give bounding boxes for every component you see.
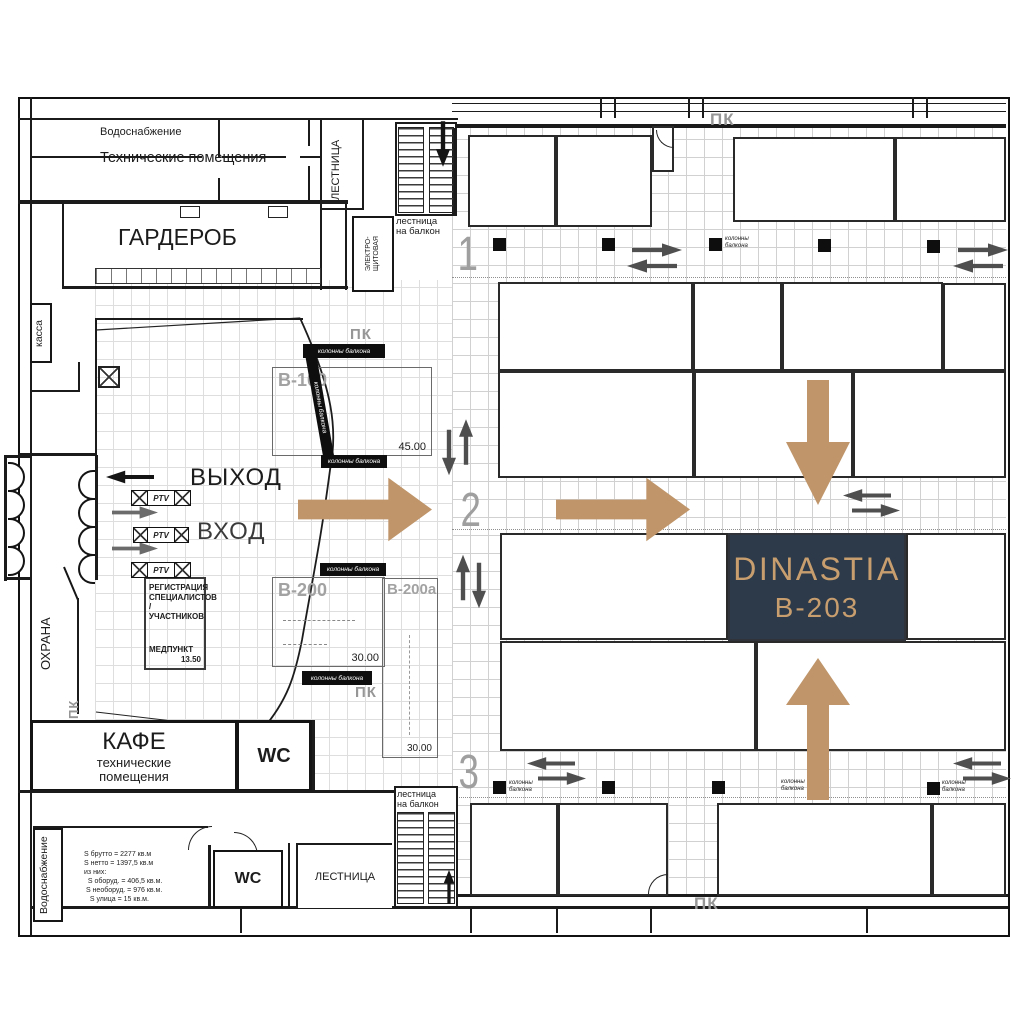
exhibit-booth <box>733 137 895 222</box>
exhibit-booth <box>895 137 1006 222</box>
aisle-arrow-left-icon <box>627 259 677 273</box>
balcony-line2: на балкон <box>396 226 440 237</box>
balcony-columns-ribbon: колонны балкона <box>321 455 387 468</box>
exhibit-booth <box>943 283 1006 371</box>
stat-line: S необоруд. = 976 кв.м. <box>84 886 162 895</box>
wall <box>312 720 315 792</box>
wall <box>362 118 364 210</box>
column-marker <box>818 239 831 252</box>
aisle-arrow-right-icon <box>632 243 682 257</box>
stat-line: S брутто = 2277 кв.м <box>84 850 162 859</box>
row-number-1: 1 <box>458 229 478 277</box>
column-note-l1: колонны <box>725 236 749 242</box>
exhibit-booth <box>782 282 943 371</box>
dashed-mark <box>409 635 410 735</box>
route-arrow-right-icon <box>556 477 690 542</box>
pk-marker: ПК <box>710 110 735 130</box>
balcony-line1: лестница <box>397 789 436 799</box>
aisle-arrow-left-icon <box>953 259 1003 273</box>
cafe-room: КАФЕ технические помещения <box>30 720 238 792</box>
stairs-down-arrow-icon <box>436 118 450 170</box>
wc-label-2: WC <box>235 870 262 888</box>
column-marker <box>602 781 615 794</box>
booth-b200a-area: 30.00 <box>407 743 432 754</box>
wall <box>30 390 78 392</box>
booth-b200-label: B-200 <box>278 580 327 601</box>
balcony-stairs-top-label: лестница на балкон <box>396 217 440 237</box>
turnstile: PTV <box>131 490 191 506</box>
cafe-sub1: технические <box>97 755 171 770</box>
registration-line3: УЧАСТНИКОВ <box>149 612 204 621</box>
aisle-arrow-right-icon <box>963 772 1011 785</box>
electro-line2: ЩИТОВАЯ <box>373 236 380 271</box>
column-note: колонны балкона <box>725 236 749 249</box>
wall <box>78 362 80 392</box>
exhibit-booth <box>693 282 782 371</box>
wall <box>345 200 347 290</box>
pk-marker: ПК <box>350 326 372 343</box>
column-marker <box>493 781 506 794</box>
entrance-label: ВХОД <box>197 518 266 546</box>
aisle-arrow-left-icon <box>953 757 1001 770</box>
column-marker <box>602 238 615 251</box>
aisle-arrow-up-icon <box>459 417 473 467</box>
thin-line <box>96 318 300 330</box>
balcony-columns-ribbon: колонны балкона <box>302 671 372 685</box>
medpoint-label: МЕДПУНКТ <box>149 645 193 654</box>
turnstile-gate <box>134 528 147 542</box>
wc-label: WC <box>257 745 290 768</box>
wall <box>218 178 220 202</box>
room-label-water-top: Водоснабжение <box>100 126 181 138</box>
room-label-tech: Технические помещения <box>100 150 266 166</box>
pk-marker: ПК <box>66 694 84 724</box>
area-stats: S брутто = 2277 кв.м S нетто = 1397,5 кв… <box>84 850 162 904</box>
dashed-mark <box>283 644 327 645</box>
booth-id: B-203 <box>775 592 860 624</box>
row-number-3: 3 <box>459 747 479 795</box>
wall <box>95 455 98 580</box>
exit-label: ВЫХОД <box>190 464 282 492</box>
stat-line: S оборуд. = 406,5 кв.м. <box>84 877 162 886</box>
wall <box>95 318 303 320</box>
turnstile-label: PTV <box>147 491 175 505</box>
turnstile-gate <box>132 491 147 505</box>
balcony-line2: на балкон <box>397 799 439 809</box>
balcony-stairs-bottom-label: лестница на балкон <box>397 789 439 809</box>
pk-marker: ПК <box>694 894 719 914</box>
aisle-arrow-left-icon <box>527 757 575 770</box>
room-label-water-bottom: Водоснабжение <box>38 834 58 916</box>
exhibit-booth <box>853 371 1006 478</box>
wall <box>4 455 7 581</box>
exit-arrow-icon <box>106 469 154 485</box>
counter <box>180 206 200 218</box>
wall <box>33 826 208 828</box>
aisle-arrow-up-icon <box>456 553 470 602</box>
brand-name: DINASTIA <box>733 551 901 588</box>
route-arrow-down-icon <box>786 380 850 505</box>
turnstile: PTV <box>133 527 189 543</box>
exhibit-booth <box>717 803 932 896</box>
electro-line1: ЭЛЕКТРО- <box>365 237 372 272</box>
column-marker <box>712 781 725 794</box>
aisle-arrow-down-icon <box>472 559 486 612</box>
wall <box>320 118 322 290</box>
stat-line: S нетто = 1397,5 кв.м <box>84 859 162 868</box>
stat-line: S улица = 15 кв.м. <box>84 895 162 904</box>
exhibit-booth <box>556 135 652 227</box>
stair-flight <box>397 812 424 904</box>
column-marker <box>709 238 722 251</box>
wall <box>62 200 64 288</box>
wall <box>308 118 310 146</box>
highlight-booth-dinastia: DINASTIA B-203 <box>728 533 906 641</box>
stair-flight <box>398 127 424 213</box>
balcony-columns-ribbon: колонны балкона <box>320 563 386 576</box>
aisle-arrow-right-icon <box>852 504 900 517</box>
counter <box>268 206 288 218</box>
row-number-2: 2 <box>461 485 481 533</box>
stairs-up-arrow-icon <box>443 870 455 904</box>
wc-room: WC <box>236 720 312 792</box>
registration-box: РЕГИСТРАЦИЯ СПЕЦИАЛИСТОВ / УЧАСТНИКОВ МЕ… <box>144 577 206 670</box>
stat-line: из них: <box>84 868 162 877</box>
stairs-room-bottom: ЛЕСТНИЦА <box>298 845 392 908</box>
booth-b200a: B-200a 30.00 <box>382 578 438 758</box>
turnstile-gate <box>175 563 190 577</box>
wall <box>62 286 348 289</box>
route-arrow-up-icon <box>786 658 850 800</box>
room-label-stairs-top: ЛЕСТНИЦА <box>330 128 346 212</box>
exhibit-booth <box>468 135 556 227</box>
wall <box>308 166 310 202</box>
column-note: колонны балкона <box>509 780 533 793</box>
security-wall-diagonal <box>64 567 78 600</box>
room-label-cloakroom: ГАРДЕРОБ <box>118 224 237 251</box>
booth-b100: B-100 45.00 <box>272 367 432 456</box>
route-arrow-right-icon <box>298 477 432 542</box>
booth-b100-area: 45.00 <box>398 441 426 453</box>
medpoint-area: 13.50 <box>149 655 201 665</box>
exhibit-booth <box>498 371 694 478</box>
aisle-arrow-right-icon <box>958 243 1008 257</box>
turnstile-gate <box>175 491 190 505</box>
wc-room-2: WC <box>213 850 283 908</box>
wall <box>4 455 32 458</box>
turnstile: PTV <box>131 562 191 578</box>
wall <box>95 318 97 455</box>
booth-b200a-label: B-200a <box>387 581 436 598</box>
column-note-l2: балкона <box>725 243 748 249</box>
shaft-box <box>98 366 120 388</box>
dashed-mark <box>283 620 355 621</box>
room-label-electro: ЭЛЕКТРО- ЩИТОВАЯ <box>352 216 394 292</box>
column-note-l2: балкона <box>509 787 532 793</box>
floor-plan: Водоснабжение Технические помещения ГАРД… <box>0 0 1024 1024</box>
wall <box>208 845 211 908</box>
exhibit-booth <box>500 641 756 751</box>
column-marker <box>493 238 506 251</box>
exhibit-booth <box>932 803 1006 896</box>
turnstile-label: PTV <box>147 563 175 577</box>
coat-rack <box>95 268 321 284</box>
wall <box>4 577 32 580</box>
exhibit-booth <box>470 803 558 896</box>
column-marker <box>927 782 940 795</box>
booth-b200-area: 30.00 <box>351 652 379 664</box>
column-note-l2: балкона <box>942 787 965 793</box>
room-label-cashier: касса <box>33 306 49 360</box>
entrance-arrow-icon <box>112 505 158 520</box>
column-marker <box>927 240 940 253</box>
wall <box>18 200 348 204</box>
aisle-arrow-right-icon <box>538 772 586 785</box>
turnstile-gate <box>175 528 188 542</box>
exhibit-booth <box>500 533 728 640</box>
registration-line1: РЕГИСТРАЦИЯ <box>149 583 208 592</box>
aisle-arrow-down-icon <box>442 429 456 476</box>
turnstile-label: PTV <box>147 528 175 542</box>
wall <box>18 790 394 793</box>
aisle-arrow-left-icon <box>843 489 891 502</box>
pk-marker: ПК <box>355 684 377 701</box>
room-label-security: ОХРАНА <box>38 608 56 680</box>
room-label-cafe: КАФЕ <box>102 728 165 756</box>
exhibit-booth <box>906 533 1006 640</box>
column-note-l1: колонны <box>509 780 533 786</box>
room-label-stairs-bottom: ЛЕСТНИЦА <box>315 871 375 883</box>
entrance-arrow-icon <box>112 541 158 556</box>
wall <box>288 843 290 908</box>
wall <box>300 156 320 158</box>
cafe-sub2: помещения <box>99 769 169 784</box>
exhibit-booth <box>498 282 693 371</box>
turnstile-gate <box>132 563 147 577</box>
booth-b200: B-200 30.00 <box>272 577 385 667</box>
